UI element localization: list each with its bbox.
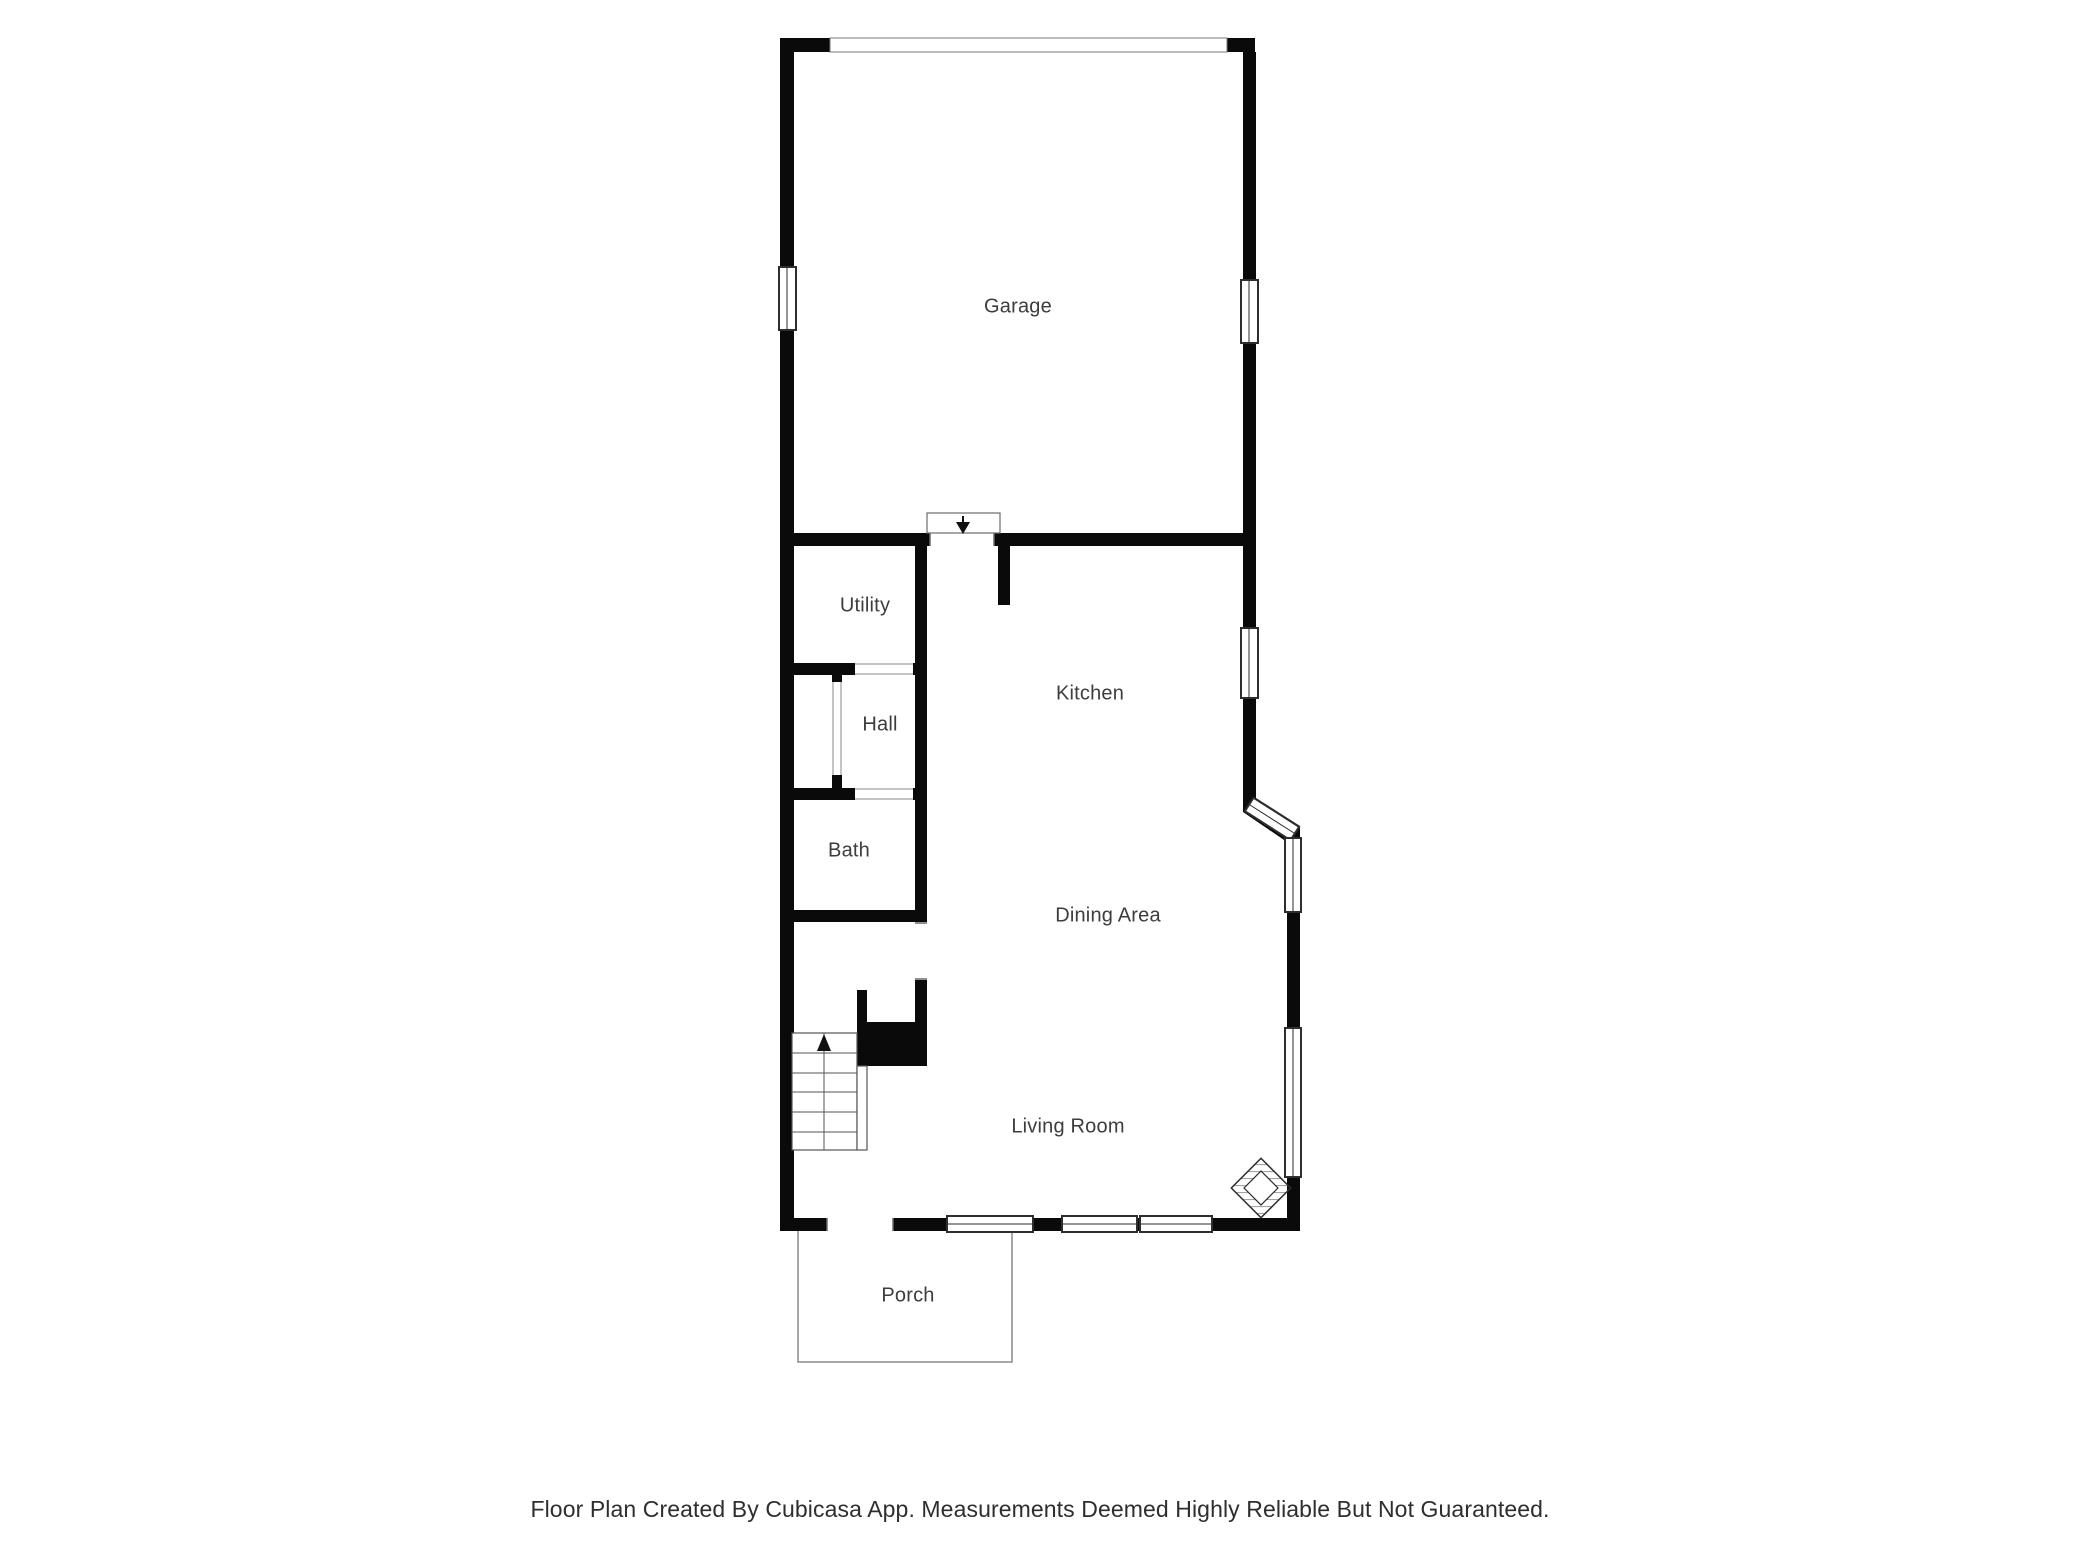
wall-segment: [780, 38, 830, 52]
door-opening: [827, 1218, 893, 1231]
wall-segment: [857, 990, 867, 1022]
floor-plan-drawing: [0, 0, 2080, 1560]
room-label-dining: Dining Area: [1055, 905, 1161, 928]
window: [947, 1216, 1033, 1232]
wall-segment: [793, 910, 927, 922]
fireplace-icon: [1231, 1158, 1290, 1217]
garage-entry-door: [927, 513, 1000, 534]
window: [1285, 838, 1301, 912]
room-label-living: Living Room: [1011, 1116, 1124, 1139]
window: [1140, 1216, 1212, 1232]
wall-segment: [793, 533, 1255, 546]
door-opening: [930, 533, 994, 546]
window: [1062, 1216, 1137, 1232]
room-label-kitchen: Kitchen: [1056, 683, 1124, 706]
wall-segment: [998, 546, 1010, 605]
room-label-hall: Hall: [862, 714, 897, 737]
footer-disclaimer: Floor Plan Created By Cubicasa App. Meas…: [0, 1496, 2080, 1523]
room-label-bath: Bath: [828, 840, 870, 863]
window-diagonal: [1245, 798, 1299, 841]
window: [1285, 1028, 1301, 1177]
door-opening: [915, 922, 927, 980]
room-label-utility: Utility: [840, 595, 890, 618]
window: [1241, 628, 1258, 698]
floor-plan: Garage Utility Hall Bath Kitchen Dining …: [0, 0, 2080, 1560]
room-label-garage: Garage: [984, 296, 1052, 319]
door-opening: [855, 663, 913, 675]
wall-segment: [857, 1022, 927, 1066]
wall-segment: [1227, 38, 1255, 52]
room-label-porch: Porch: [881, 1285, 934, 1308]
stairs: [792, 1033, 867, 1150]
door-opening: [855, 788, 913, 800]
window: [1241, 280, 1258, 343]
garage-door: [830, 38, 1227, 52]
stair-railing: [857, 1066, 867, 1150]
window: [779, 267, 796, 330]
walls: [780, 38, 1300, 1231]
